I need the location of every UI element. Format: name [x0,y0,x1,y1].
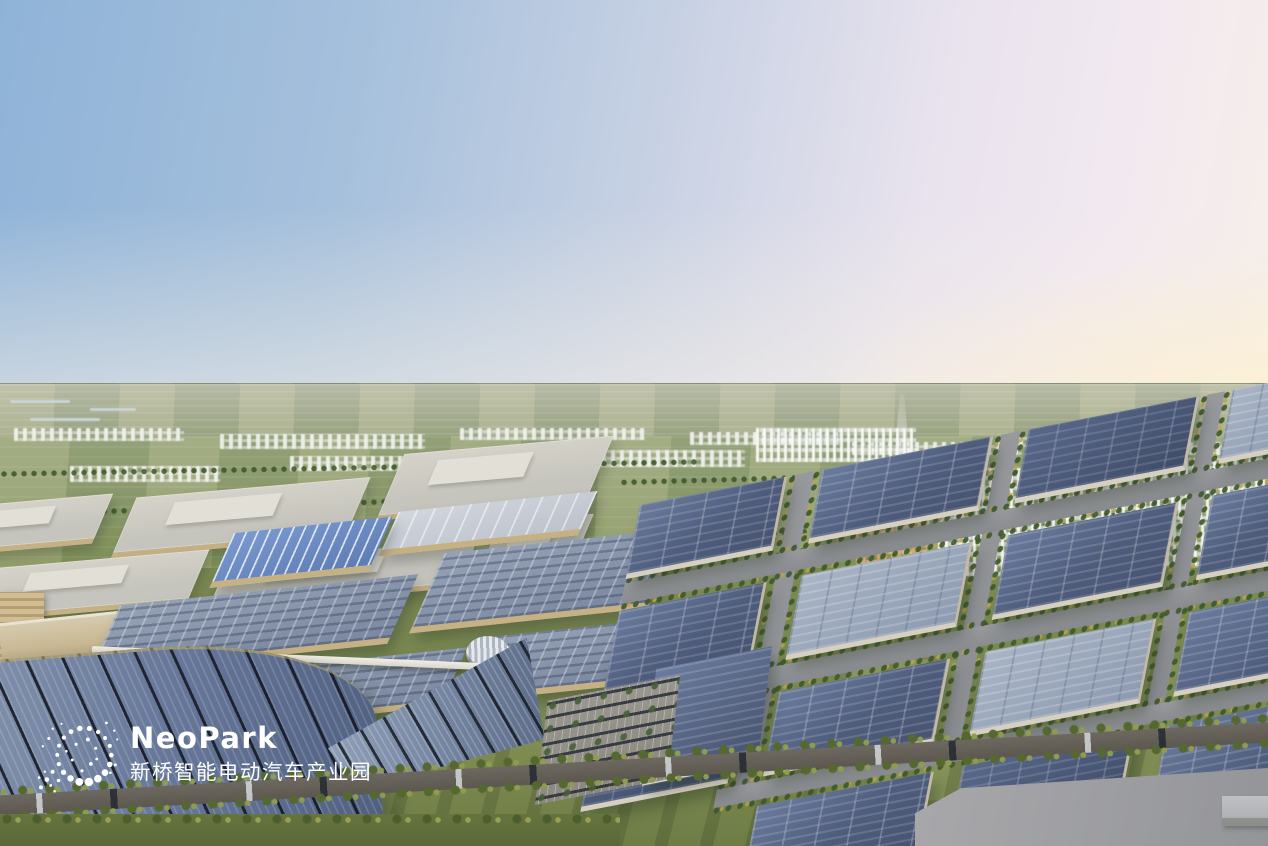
water-glint [30,418,100,421]
distant-town [220,434,425,449]
water-glint [10,400,70,403]
neopark-logo: NeoPark 新桥智能电动汽车产业园 [38,712,458,822]
aerial-render-scene: NeoPark 新桥智能电动汽车产业园 [0,0,1268,846]
factory-building [0,494,113,557]
concrete-platform [1222,796,1268,826]
distant-town [14,428,184,441]
water-glint [90,408,136,411]
brand-tagline-chinese: 新桥智能电动汽车产业园 [130,762,450,783]
brand-name: NeoPark [130,724,450,753]
sky [0,0,1268,398]
neopark-logo-text: NeoPark 新桥智能电动汽车产业园 [130,724,450,814]
neopark-logo-mark-icon [38,716,126,804]
